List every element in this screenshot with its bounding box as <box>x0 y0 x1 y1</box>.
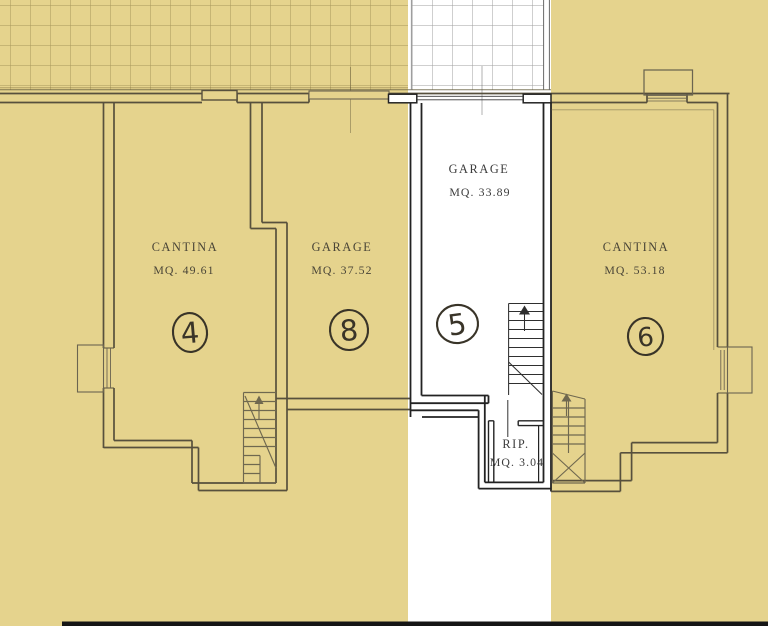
floor-plan: CANTINA MQ. 49.61 GARAGE MQ. 37.52 GARAG… <box>0 0 768 626</box>
garage5-area: MQ. 33.89 <box>449 185 510 199</box>
garage8-label: GARAGE <box>312 240 373 254</box>
unit-number-6: 6 <box>636 322 656 354</box>
rip-area: MQ. 3.04 <box>490 455 544 469</box>
cantina4-area: MQ. 49.61 <box>153 263 214 277</box>
rip-label: RIP. <box>502 437 529 451</box>
garage-door-lines <box>417 96 523 100</box>
garage5-walls <box>411 103 552 492</box>
cantina6-area: MQ. 53.18 <box>604 263 665 277</box>
unit-number-5: 5 <box>446 306 469 342</box>
garage8-area: MQ. 37.52 <box>311 263 372 277</box>
garage5-label: GARAGE <box>449 162 510 176</box>
tile-hatch <box>0 0 551 90</box>
garage5-door-pillars <box>389 94 552 103</box>
unit-number-8: 8 <box>339 313 360 348</box>
floor-plan-svg: CANTINA MQ. 49.61 GARAGE MQ. 37.52 GARAG… <box>0 0 768 626</box>
cantina4-label: CANTINA <box>152 240 219 254</box>
unit-number-4: 4 <box>179 315 200 350</box>
stairs-middle <box>509 304 543 396</box>
scan-edge-bar <box>62 622 768 626</box>
stair-direction-arrow <box>519 306 530 315</box>
cantina6-label: CANTINA <box>603 240 670 254</box>
